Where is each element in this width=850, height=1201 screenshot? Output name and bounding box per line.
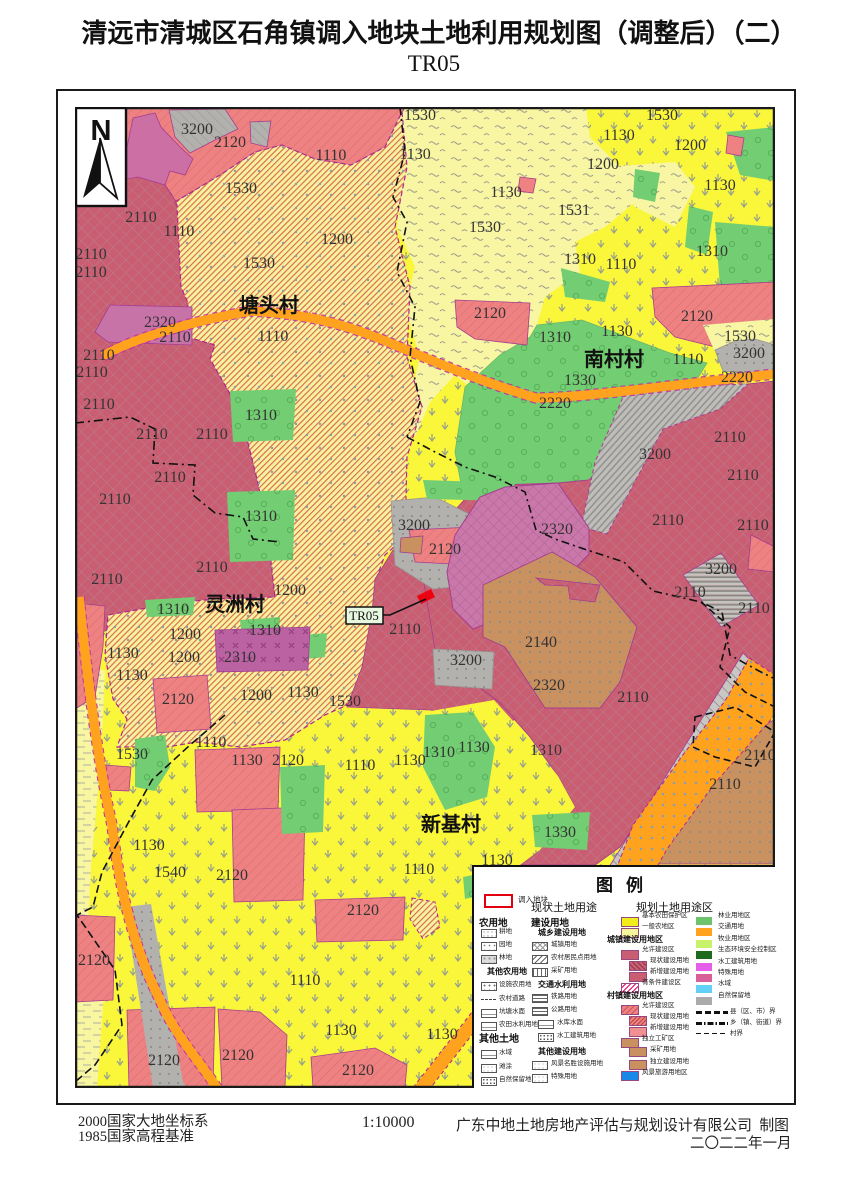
svg-text:1310: 1310 [249, 622, 281, 639]
svg-text:2120: 2120 [148, 1052, 180, 1069]
svg-text:2120: 2120 [429, 541, 461, 558]
svg-text:TR05: TR05 [349, 608, 379, 623]
svg-text:1110: 1110 [673, 351, 704, 368]
svg-text:1310: 1310 [157, 601, 189, 618]
svg-text:2310: 2310 [224, 649, 256, 666]
svg-text:1330: 1330 [544, 824, 576, 841]
svg-text:1200: 1200 [168, 649, 200, 666]
svg-text:1310: 1310 [696, 243, 728, 260]
svg-text:1130: 1130 [325, 1022, 356, 1039]
svg-text:2110: 2110 [125, 209, 156, 226]
svg-text:1530: 1530 [225, 180, 257, 197]
svg-text:1130: 1130 [287, 684, 318, 701]
svg-text:1200: 1200 [169, 626, 201, 643]
svg-text:1530: 1530 [724, 328, 756, 345]
svg-text:1200: 1200 [321, 231, 353, 248]
svg-text:2120: 2120 [78, 952, 110, 969]
svg-text:3200: 3200 [450, 652, 482, 669]
svg-text:1130: 1130 [107, 645, 138, 662]
svg-text:1530: 1530 [116, 746, 148, 763]
svg-text:1110: 1110 [345, 757, 376, 774]
svg-text:1310: 1310 [564, 251, 596, 268]
svg-text:2220: 2220 [539, 395, 571, 412]
svg-text:2110: 2110 [617, 689, 648, 706]
svg-text:2120: 2120 [681, 308, 713, 325]
svg-text:2120: 2120 [347, 902, 379, 919]
svg-text:3200: 3200 [398, 517, 430, 534]
svg-text:2110: 2110 [136, 426, 167, 443]
svg-text:2110: 2110 [91, 571, 122, 588]
svg-text:2110: 2110 [652, 512, 683, 529]
svg-text:2120: 2120 [214, 134, 246, 151]
svg-text:1330: 1330 [564, 372, 596, 389]
svg-text:2120: 2120 [474, 305, 506, 322]
svg-text:1110: 1110 [196, 734, 227, 751]
svg-text:3200: 3200 [639, 446, 671, 463]
svg-text:2110: 2110 [83, 396, 114, 413]
svg-text:2110: 2110 [99, 491, 130, 508]
svg-text:2220: 2220 [721, 369, 753, 386]
svg-text:2110: 2110 [76, 364, 107, 381]
svg-text:2110: 2110 [389, 621, 420, 638]
svg-text:2110: 2110 [709, 776, 740, 793]
svg-text:1110: 1110 [316, 147, 347, 164]
svg-text:灵洲村: 灵洲村 [205, 593, 265, 616]
svg-text:塘头村: 塘头村 [239, 293, 299, 317]
svg-text:2110: 2110 [674, 584, 705, 601]
svg-text:1110: 1110 [606, 256, 637, 273]
svg-text:2110: 2110 [737, 517, 768, 534]
svg-text:2110: 2110 [714, 429, 745, 446]
svg-text:1530: 1530 [243, 255, 275, 272]
svg-text:1200: 1200 [240, 687, 272, 704]
svg-text:1130: 1130 [704, 177, 735, 194]
svg-text:1310: 1310 [245, 407, 277, 424]
svg-text:1200: 1200 [674, 137, 706, 154]
svg-text:1200: 1200 [587, 156, 619, 173]
svg-text:1130: 1130 [603, 127, 634, 144]
svg-text:1200: 1200 [274, 582, 306, 599]
svg-text:南村村: 南村村 [584, 348, 644, 371]
svg-text:1130: 1130 [601, 323, 632, 340]
svg-text:1110: 1110 [404, 861, 435, 878]
svg-text:1540: 1540 [154, 864, 186, 881]
svg-text:1531: 1531 [558, 202, 590, 219]
svg-text:1530: 1530 [646, 107, 678, 124]
svg-text:1130: 1130 [458, 739, 489, 756]
svg-text:1130: 1130 [116, 667, 147, 684]
svg-text:1130: 1130 [394, 752, 425, 769]
svg-text:2120: 2120 [222, 1047, 254, 1064]
svg-text:2110: 2110 [75, 246, 106, 263]
svg-text:3200: 3200 [733, 345, 765, 362]
svg-text:1130: 1130 [133, 837, 164, 854]
svg-text:1310: 1310 [539, 329, 571, 346]
svg-text:2140: 2140 [525, 634, 557, 651]
svg-text:1110: 1110 [290, 972, 321, 989]
svg-text:1310: 1310 [245, 508, 277, 525]
svg-text:1530: 1530 [404, 107, 436, 124]
svg-text:1130: 1130 [426, 1026, 457, 1043]
svg-text:3200: 3200 [705, 561, 737, 578]
svg-text:2110: 2110 [196, 559, 227, 576]
svg-text:2110: 2110 [159, 329, 190, 346]
svg-text:2110: 2110 [196, 426, 227, 443]
svg-text:2120: 2120 [272, 752, 304, 769]
svg-text:1130: 1130 [490, 184, 521, 201]
svg-text:1110: 1110 [258, 328, 289, 345]
svg-text:1130: 1130 [231, 752, 262, 769]
svg-text:1530: 1530 [469, 219, 501, 236]
svg-text:2120: 2120 [342, 1062, 374, 1079]
svg-text:2110: 2110 [75, 264, 106, 281]
svg-text:1530: 1530 [329, 693, 361, 710]
svg-text:1310: 1310 [530, 742, 562, 759]
svg-text:3200: 3200 [181, 121, 213, 138]
svg-text:2110: 2110 [154, 469, 185, 486]
svg-text:2320: 2320 [541, 521, 573, 538]
svg-text:2110: 2110 [744, 747, 775, 764]
svg-text:2120: 2120 [216, 867, 248, 884]
svg-text:2120: 2120 [162, 691, 194, 708]
svg-text:新基村: 新基村 [421, 812, 481, 836]
svg-text:2110: 2110 [738, 600, 769, 617]
svg-text:1110: 1110 [164, 223, 195, 240]
svg-text:2110: 2110 [83, 347, 114, 364]
svg-text:2110: 2110 [727, 467, 758, 484]
svg-text:2320: 2320 [533, 677, 565, 694]
svg-text:1310: 1310 [423, 744, 455, 761]
svg-text:1130: 1130 [399, 146, 430, 163]
